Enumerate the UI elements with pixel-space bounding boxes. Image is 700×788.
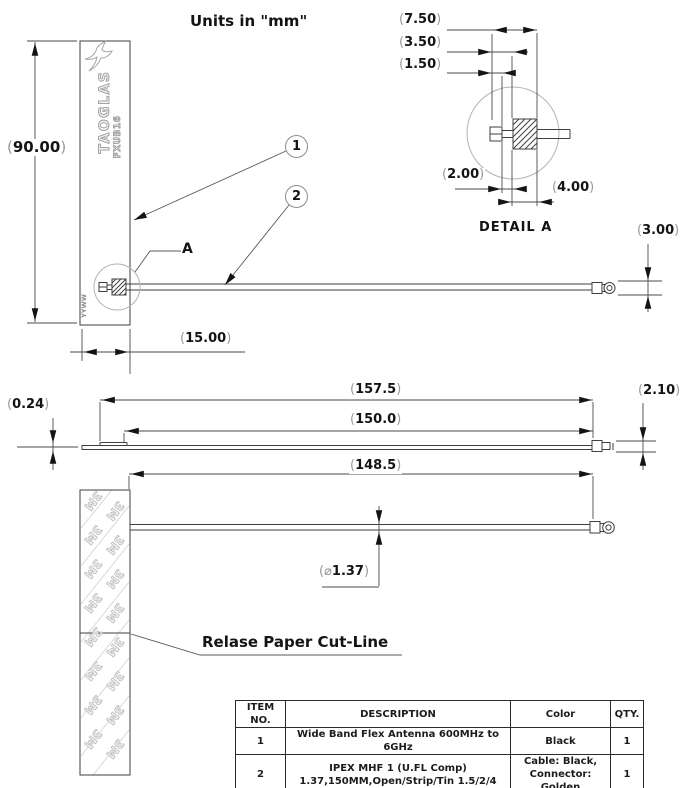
- bom-table: ITEM NO. DESCRIPTION Color QTY. 1 Wide B…: [235, 700, 644, 788]
- release-paper-watermark: 3M 3M 3M 3M 3M 3M 3M 3M 3M 3M 3M 3M 3M 3…: [80, 490, 130, 775]
- bom-row-2: 2 IPEX MHF 1 (U.FL Comp) 1.37,150MM,Open…: [236, 755, 644, 788]
- bom-row2-qty: 1: [611, 755, 644, 788]
- dim-thickness-024: (0.24): [6, 398, 50, 413]
- brand-logo-text: TAOGLAS: [97, 52, 113, 172]
- bom-header-qty: QTY.: [611, 701, 644, 728]
- bom-row1-description: Wide Band Flex Antenna 600MHz to 6GHz: [286, 728, 511, 755]
- bom-row1-qty: 1: [611, 728, 644, 755]
- balloon-item-1: 1: [285, 135, 308, 158]
- dim-cable-diameter: (⌀1.37): [318, 565, 370, 580]
- detail-ref-label: A: [181, 241, 194, 257]
- bom-row-1: 1 Wide Band Flex Antenna 600MHz to 6GHz …: [236, 728, 644, 755]
- cutline-label: Relase Paper Cut-Line: [201, 634, 389, 651]
- dim-2-00: (2.00): [441, 168, 485, 183]
- side-view-geometry: [82, 441, 613, 452]
- dim-3-50: (3.50): [398, 36, 442, 51]
- model-number-text: FXUB16: [113, 102, 123, 172]
- dim-4-00: (4.00): [551, 181, 595, 196]
- bom-header-color: Color: [511, 701, 611, 728]
- bom-header-item-no: ITEM NO.: [236, 701, 286, 728]
- bom-row1-item-no: 1: [236, 728, 286, 755]
- bom-row2-color: Cable: Black, Connector: Golden: [511, 755, 611, 788]
- dim-length-1575: (157.5): [349, 383, 402, 398]
- dim-1-50: (1.50): [398, 58, 442, 73]
- dim-connector-210: (2.10): [637, 384, 681, 399]
- dim-3-00: (3.00): [636, 224, 680, 239]
- technical-drawing-page: Units in "mm" (90.00) 1 2 A (7.50) (3.50…: [0, 0, 700, 788]
- balloon-item-2: 2: [285, 185, 308, 208]
- dim-width-15: (15.00): [179, 332, 232, 347]
- bom-header-description: DESCRIPTION: [286, 701, 511, 728]
- units-note: Units in "mm": [189, 13, 308, 30]
- dim-height-90: (90.00): [6, 139, 66, 156]
- detail-circles: [85, 41, 559, 310]
- dim-length-1485: (148.5): [349, 459, 402, 474]
- detail-a-title: DETAIL A: [478, 221, 553, 236]
- bom-row2-description: IPEX MHF 1 (U.FL Comp) 1.37,150MM,Open/S…: [286, 755, 511, 788]
- bom-row1-color: Black: [511, 728, 611, 755]
- front-view-geometry: [80, 41, 615, 325]
- dim-7-50: (7.50): [398, 13, 442, 28]
- date-code-text: YYWW: [80, 286, 88, 326]
- bom-header-row: ITEM NO. DESCRIPTION Color QTY.: [236, 701, 644, 728]
- bom-row2-item-no: 2: [236, 755, 286, 788]
- dim-length-1500: (150.0): [349, 413, 402, 428]
